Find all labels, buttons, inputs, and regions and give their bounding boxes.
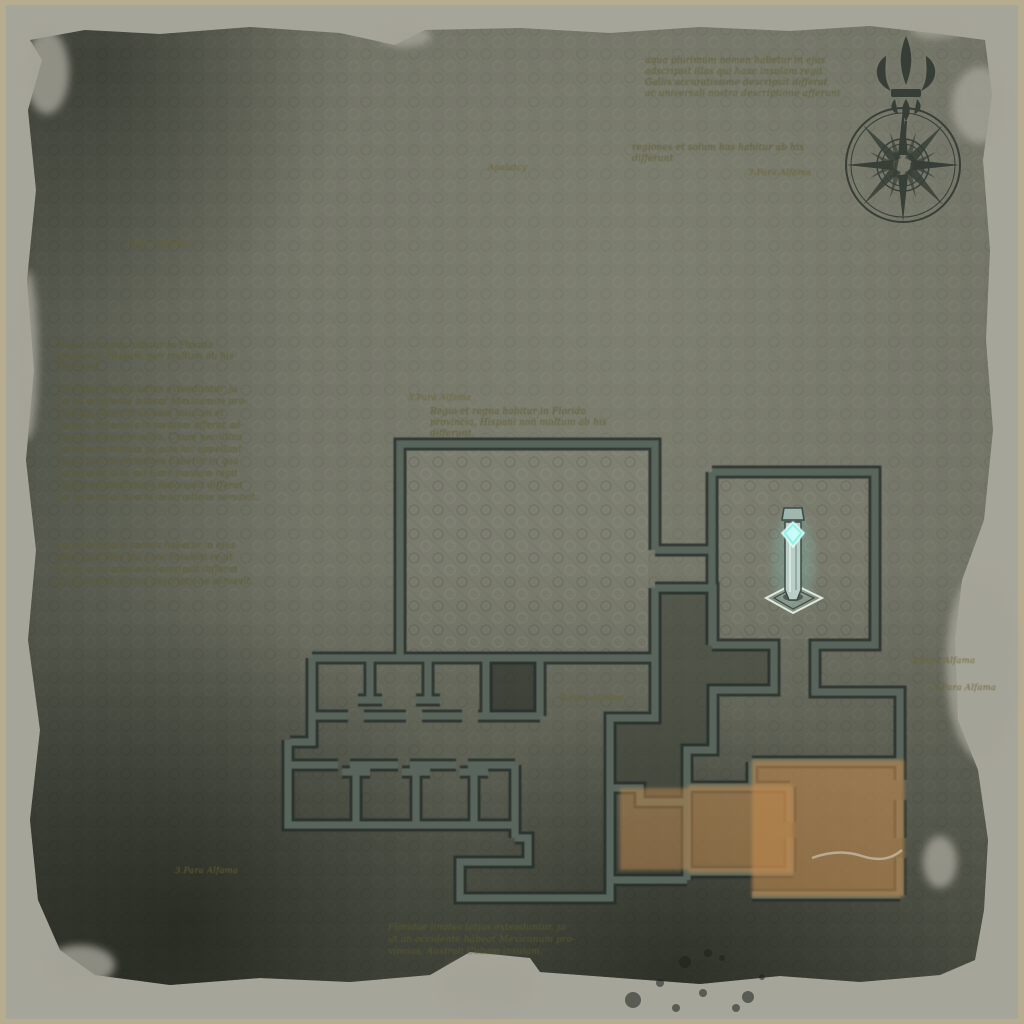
note-bottom: Floridae limites latius extenduntur, ja [387, 923, 566, 933]
note-left-lower: adscripsit illas qui hanc insulam regit [55, 553, 233, 563]
note-left-lower: ac universali nostra descriptione servav… [55, 577, 253, 587]
note-mid: Regio et regna habitur in Florida [429, 407, 586, 417]
note-bottom: ut ab occidente habeat Mexicanum pro- [388, 935, 575, 945]
place-label-0: 3.Para Alfama [125, 239, 188, 249]
note-mid: provincia, Hispani non multum ab his [430, 418, 607, 428]
place-label-6: 3.Para Alfama [933, 683, 996, 693]
note-left-main: Floridae limites latius extenduntur, ja [59, 385, 238, 395]
note-left-main: plurimum Florida pagum hic appellant [60, 445, 242, 455]
place-label-5: 3.Para Alfama [912, 656, 975, 666]
note-left-main: Gallis accuratissime descripsit differat [60, 481, 243, 491]
place-label-4: 3.Para Alfama [560, 693, 623, 703]
note-left-upper: differunt. [57, 363, 102, 373]
note-top-center: adscripsit illas qui hanc insulam regit [645, 67, 823, 77]
note-left-main: vincias, Australi Cubam insulam et [60, 409, 224, 419]
note-top-center-small: regiones et solum has habitur ab his [632, 143, 804, 153]
note-bottom: vincias, Australi Cubam insulam. [388, 947, 543, 957]
highlight-room-left [620, 788, 688, 870]
note-top-center: Gallis accuratissime descripsit differat [645, 78, 828, 88]
compass-monogram: D [888, 146, 916, 186]
place-label-7: 3.Para Alfama [175, 866, 238, 876]
map-canvas[interactable]: aqua plurimum nomen habetur in ejusadscr… [0, 0, 1024, 1024]
dark-cell-shade [486, 658, 540, 716]
place-label-3: 3.Para Alfama [408, 393, 471, 403]
note-top-center: aqua plurimum nomen habetur in ejus [645, 56, 826, 66]
note-left-main: facies, circumsis in medium afferat ad- [59, 421, 244, 431]
highlight-room-right [752, 760, 904, 897]
note-top-center-small: differunt [632, 154, 674, 164]
marker-cap [782, 508, 804, 520]
note-left-main: mirum religione nulla. Unum nec ultra [60, 433, 242, 443]
note-left-lower: aqua plurimum nomen habetur in ejus [55, 541, 236, 551]
note-left-upper: provincia, Hispani non multum ab his [57, 352, 234, 362]
place-label-2: 3.Para Alfama [748, 168, 811, 178]
game-map-screen: aqua plurimum nomen habetur in ejusadscr… [0, 0, 1024, 1024]
note-top-center: ac universali nostra descriptione afferu… [645, 89, 841, 99]
place-label-1: Apalatcy [487, 163, 527, 173]
note-left-main: ac universali nostra descriptione servav… [60, 493, 258, 503]
note-left-main: ut ab occidente habeat Mexicanum pro- [60, 397, 247, 407]
note-left-main: adscripsit illas qui hanc insulam regit [60, 469, 238, 479]
note-mid: differunt. [430, 429, 475, 439]
note-left-main: aqua plurimum nomen habetur in qua [60, 457, 239, 467]
note-left-lower: Gallis accuratissime descripsit differat [55, 565, 238, 575]
note-left-upper: Regio et regna habitur in Florida [56, 341, 213, 351]
